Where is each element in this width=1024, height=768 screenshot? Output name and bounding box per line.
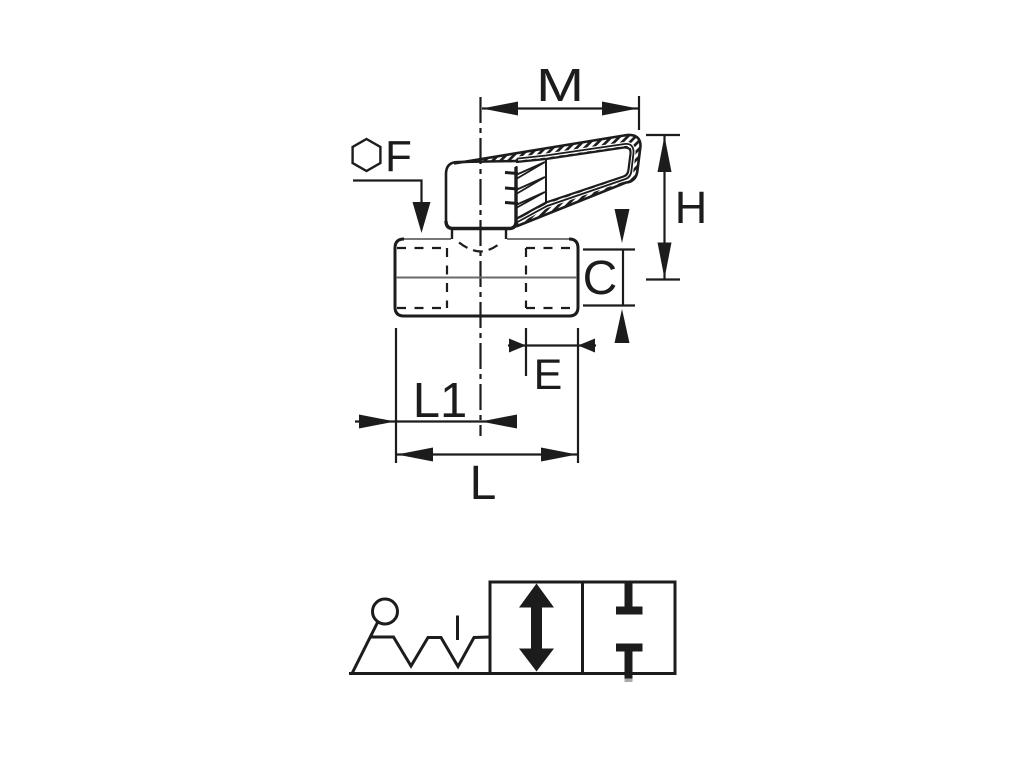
svg-text:C: C (583, 252, 618, 305)
svg-text:M: M (536, 60, 584, 111)
svg-text:L: L (470, 457, 497, 510)
svg-text:F: F (385, 132, 412, 181)
svg-text:E: E (534, 351, 563, 399)
svg-text:H: H (675, 182, 708, 233)
svg-text:L1: L1 (413, 374, 468, 428)
